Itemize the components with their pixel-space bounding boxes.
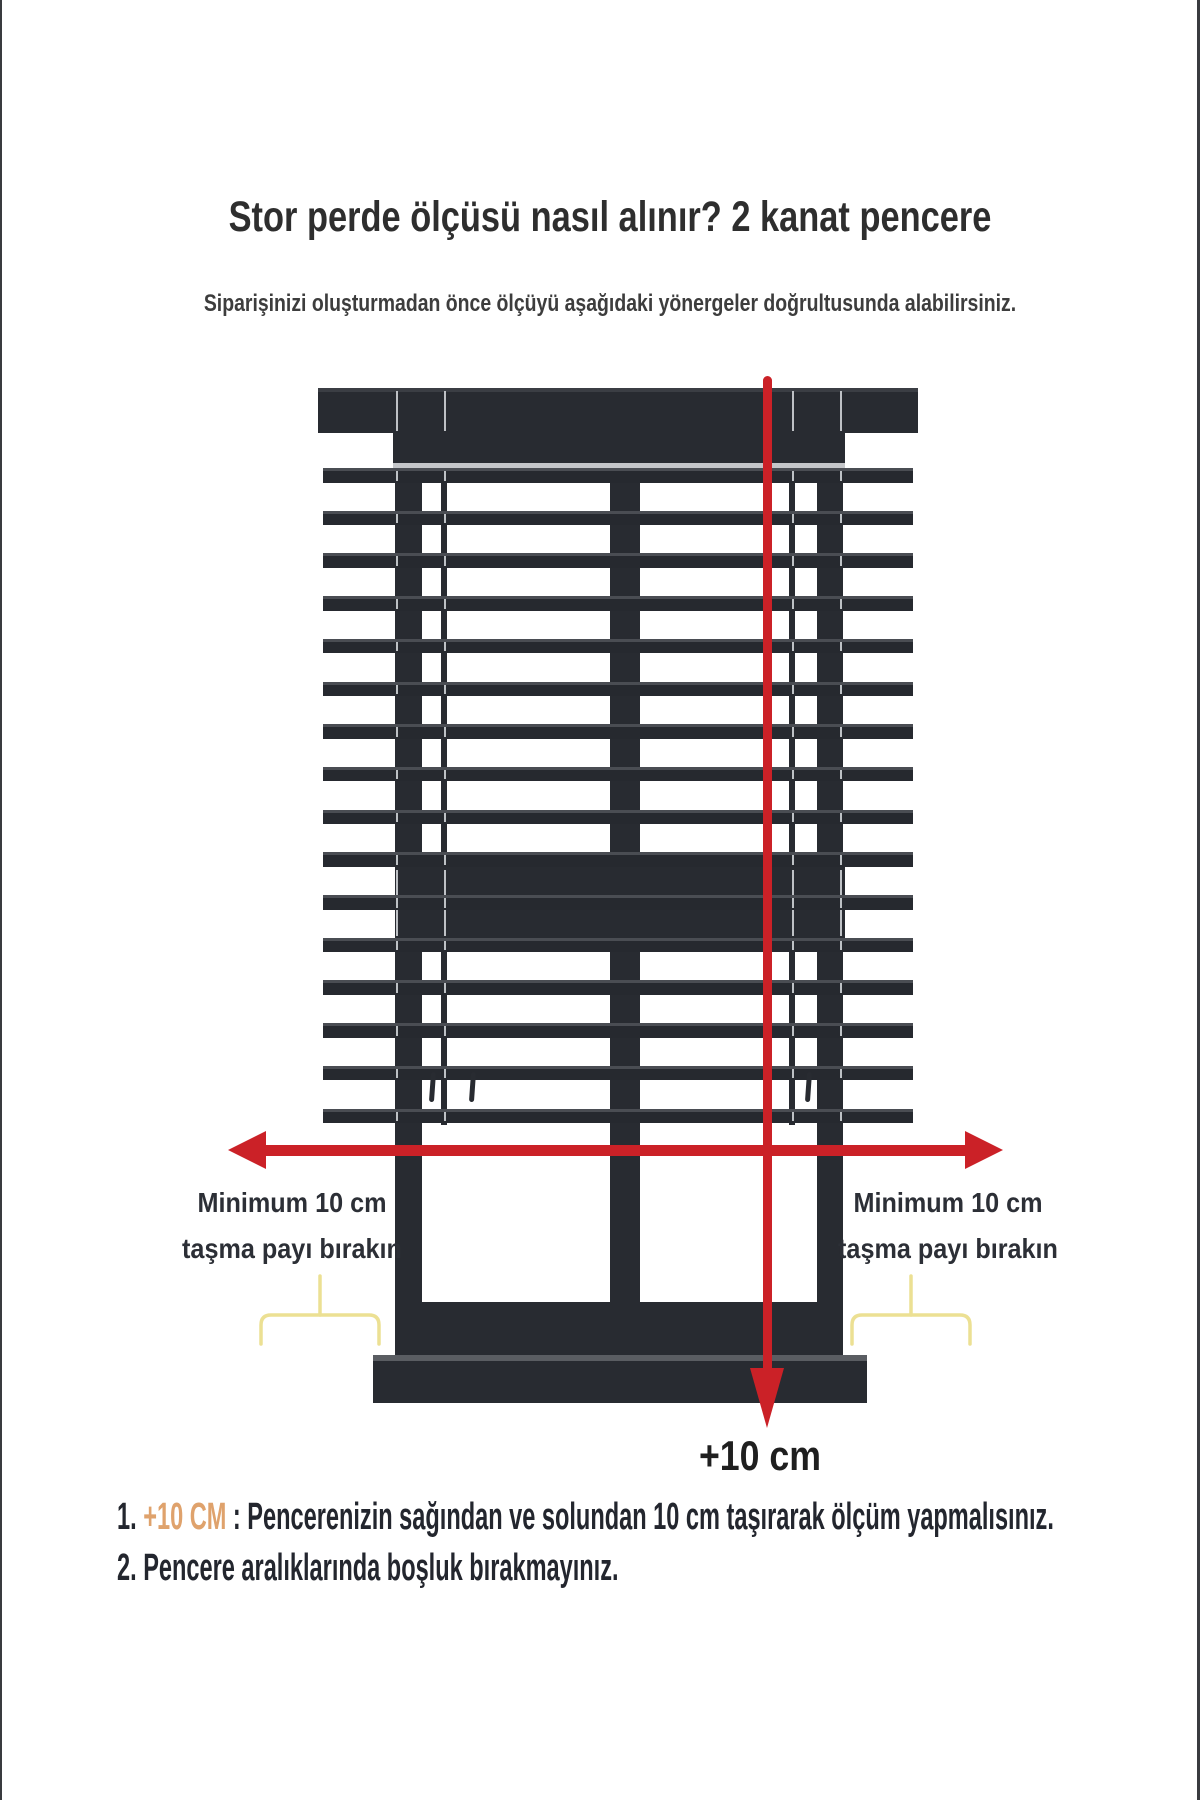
blind-slat xyxy=(323,553,913,568)
left-overhang-label-line2: taşma payı bırakın xyxy=(157,1226,427,1272)
right-overhang-label-line2: taşma payı bırakın xyxy=(813,1226,1083,1272)
width-measure-arrow-right-head xyxy=(965,1131,1003,1169)
instruction-1: 1. +10 CM : Pencerenizin sağından ve sol… xyxy=(117,1492,1109,1543)
instruction-2-text: Pencere aralıklarında boşluk bırakmayını… xyxy=(137,1547,619,1589)
instruction-2: 2. Pencere aralıklarında boşluk bırakmay… xyxy=(117,1543,1109,1594)
instruction-2-number: 2. xyxy=(117,1547,137,1589)
blind-slat xyxy=(323,1066,913,1081)
window-top-frame xyxy=(393,433,845,463)
right-overhang-brace xyxy=(849,1274,973,1346)
blind-cord-pull xyxy=(429,1072,436,1102)
blind-slat xyxy=(323,938,913,953)
blind-slat xyxy=(323,468,913,483)
blind-cord-pull xyxy=(469,1072,476,1102)
blind-slat xyxy=(323,810,913,825)
height-measure-arrow-down-head xyxy=(750,1368,784,1428)
bottom-measurement-label: +10 cm xyxy=(658,1432,862,1480)
blind-cord-pull xyxy=(805,1072,812,1102)
blind-slat xyxy=(323,980,913,995)
instruction-1-highlight: +10 CM xyxy=(137,1496,227,1538)
blind-slat xyxy=(323,852,913,867)
blind-headrail xyxy=(318,388,918,433)
blind-slat xyxy=(323,596,913,611)
blind-slat xyxy=(323,895,913,910)
instruction-1-text: : Pencerenizin sağından ve solundan 10 c… xyxy=(226,1496,1054,1538)
blind-slat xyxy=(323,1023,913,1038)
left-overhang-label: Minimum 10 cm taşma payı bırakın xyxy=(157,1180,427,1272)
width-measure-arrow-left-head xyxy=(228,1131,266,1169)
window-sill xyxy=(373,1355,867,1403)
instructions: 1. +10 CM : Pencerenizin sağından ve sol… xyxy=(117,1492,1109,1594)
blind-slat xyxy=(323,1109,913,1124)
height-measure-arrow-shaft xyxy=(763,376,772,1368)
right-overhang-label: Minimum 10 cm taşma payı bırakın xyxy=(813,1180,1083,1272)
blind-slat xyxy=(323,511,913,526)
blind-slat xyxy=(323,724,913,739)
right-overhang-label-line1: Minimum 10 cm xyxy=(813,1180,1083,1226)
left-overhang-label-line1: Minimum 10 cm xyxy=(157,1180,427,1226)
blind-slat xyxy=(323,767,913,782)
left-overhang-brace xyxy=(258,1274,382,1346)
width-measure-arrow-shaft xyxy=(262,1145,972,1156)
instruction-1-number: 1. xyxy=(117,1496,137,1538)
window-bottom-rail xyxy=(395,1302,843,1355)
blind-slat xyxy=(323,639,913,654)
infographic-canvas: Stor perde ölçüsü nasıl alınır? 2 kanat … xyxy=(0,0,1200,1800)
blind-slat xyxy=(323,682,913,697)
